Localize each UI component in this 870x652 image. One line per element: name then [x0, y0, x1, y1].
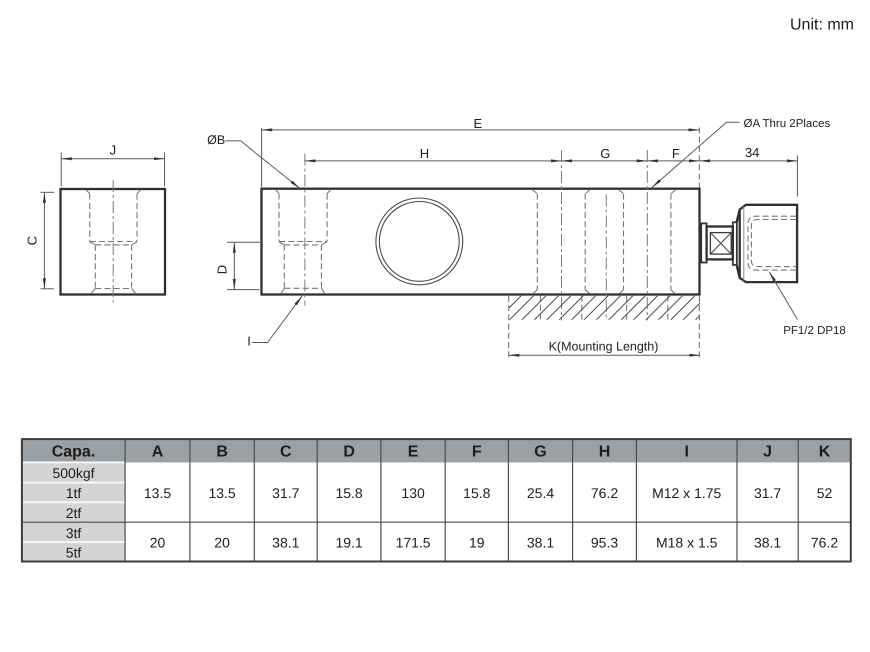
svg-text:E: E — [408, 444, 419, 461]
svg-text:19.1: 19.1 — [335, 535, 362, 551]
svg-text:13.5: 13.5 — [208, 485, 235, 501]
svg-text:500kgf: 500kgf — [52, 465, 94, 481]
svg-text:34: 34 — [745, 145, 759, 160]
svg-text:J: J — [763, 444, 772, 461]
svg-text:38.1: 38.1 — [272, 535, 299, 551]
svg-text:5tf: 5tf — [66, 544, 82, 560]
svg-text:76.2: 76.2 — [811, 535, 838, 551]
svg-text:95.3: 95.3 — [591, 535, 618, 551]
svg-text:D: D — [214, 265, 229, 274]
svg-text:J: J — [110, 143, 117, 158]
svg-text:Unit: mm: Unit: mm — [790, 17, 854, 34]
svg-text:C: C — [280, 444, 292, 461]
svg-text:M12 x 1.75: M12 x 1.75 — [652, 485, 721, 501]
svg-text:F: F — [672, 146, 680, 161]
svg-text:52: 52 — [817, 485, 833, 501]
svg-text:76.2: 76.2 — [591, 485, 618, 501]
svg-text:20: 20 — [150, 535, 166, 551]
svg-text:3tf: 3tf — [66, 525, 82, 541]
svg-text:38.1: 38.1 — [527, 535, 554, 551]
svg-text:E: E — [473, 116, 482, 131]
svg-text:15.8: 15.8 — [335, 485, 362, 501]
svg-text:I: I — [684, 444, 688, 461]
svg-text:171.5: 171.5 — [396, 535, 431, 551]
svg-text:31.7: 31.7 — [754, 485, 781, 501]
svg-text:D: D — [343, 444, 355, 461]
svg-text:G: G — [534, 444, 546, 461]
svg-text:C: C — [25, 236, 40, 245]
svg-text:ØA Thru 2Places: ØA Thru 2Places — [744, 118, 831, 130]
svg-text:ØB: ØB — [207, 133, 225, 147]
svg-text:F: F — [472, 444, 482, 461]
svg-text:H: H — [599, 444, 611, 461]
svg-text:13.5: 13.5 — [144, 485, 171, 501]
svg-text:G: G — [600, 146, 610, 161]
svg-text:A: A — [152, 444, 164, 461]
svg-text:K(Mounting Length): K(Mounting Length) — [549, 340, 659, 354]
svg-text:2tf: 2tf — [66, 505, 82, 521]
svg-text:20: 20 — [214, 535, 230, 551]
svg-text:K: K — [819, 444, 831, 461]
svg-text:31.7: 31.7 — [272, 485, 299, 501]
svg-text:25.4: 25.4 — [527, 485, 554, 501]
svg-text:15.8: 15.8 — [463, 485, 490, 501]
svg-text:19: 19 — [469, 535, 485, 551]
svg-text:1tf: 1tf — [66, 485, 82, 501]
svg-text:130: 130 — [401, 485, 425, 501]
svg-text:38.1: 38.1 — [754, 535, 781, 551]
svg-text:I: I — [247, 334, 251, 349]
svg-text:H: H — [420, 146, 429, 161]
svg-text:B: B — [216, 444, 228, 461]
svg-text:Capa.: Capa. — [52, 444, 96, 461]
svg-text:M18 x 1.5: M18 x 1.5 — [656, 535, 718, 551]
svg-text:PF1/2 DP18: PF1/2 DP18 — [783, 325, 846, 337]
